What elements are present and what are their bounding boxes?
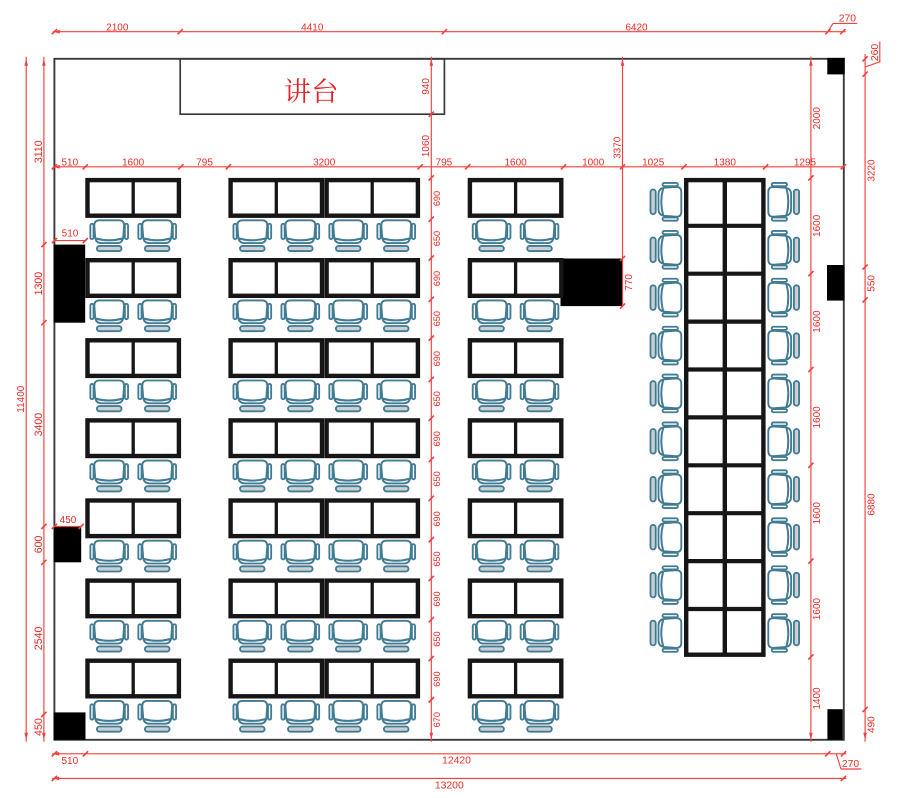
svg-text:1600: 1600 — [122, 158, 145, 169]
svg-text:1380: 1380 — [714, 158, 737, 169]
svg-text:690: 690 — [432, 351, 442, 366]
svg-text:650: 650 — [432, 551, 442, 566]
svg-text:2100: 2100 — [106, 22, 129, 33]
svg-text:550: 550 — [866, 275, 877, 292]
svg-text:1060: 1060 — [421, 134, 432, 157]
svg-text:3200: 3200 — [313, 158, 336, 169]
svg-text:270: 270 — [839, 13, 857, 24]
svg-text:490: 490 — [866, 716, 877, 733]
svg-text:1600: 1600 — [812, 406, 823, 429]
svg-text:13200: 13200 — [435, 781, 464, 792]
svg-text:3220: 3220 — [866, 159, 877, 182]
svg-text:11400: 11400 — [16, 385, 27, 413]
svg-text:1400: 1400 — [812, 687, 823, 710]
svg-text:690: 690 — [432, 271, 442, 286]
svg-text:650: 650 — [432, 231, 442, 246]
svg-text:770: 770 — [624, 274, 635, 291]
svg-text:3370: 3370 — [613, 136, 624, 159]
svg-text:1600: 1600 — [812, 597, 823, 620]
svg-text:1300: 1300 — [33, 272, 45, 296]
svg-text:510: 510 — [61, 158, 78, 169]
svg-text:1025: 1025 — [642, 158, 665, 169]
svg-text:450: 450 — [33, 718, 45, 736]
svg-text:3400: 3400 — [33, 413, 45, 437]
svg-text:650: 650 — [432, 471, 442, 486]
svg-text:4410: 4410 — [301, 22, 324, 33]
svg-text:6880: 6880 — [866, 493, 877, 516]
svg-text:1000: 1000 — [582, 158, 605, 169]
svg-text:650: 650 — [432, 391, 442, 406]
svg-text:3110: 3110 — [33, 140, 45, 163]
svg-text:690: 690 — [432, 191, 442, 206]
svg-text:1600: 1600 — [504, 158, 527, 169]
svg-text:1600: 1600 — [812, 214, 823, 237]
svg-text:795: 795 — [196, 158, 213, 169]
svg-text:1600: 1600 — [812, 502, 823, 525]
svg-text:510: 510 — [62, 229, 79, 240]
svg-text:690: 690 — [432, 431, 442, 446]
svg-text:795: 795 — [436, 158, 453, 169]
svg-text:650: 650 — [432, 631, 442, 646]
svg-text:1295: 1295 — [794, 158, 817, 169]
svg-text:690: 690 — [432, 591, 442, 606]
svg-text:2000: 2000 — [812, 107, 823, 130]
svg-text:270: 270 — [842, 759, 860, 770]
svg-text:6420: 6420 — [625, 22, 648, 33]
svg-text:940: 940 — [421, 78, 432, 95]
svg-text:1600: 1600 — [812, 310, 823, 333]
svg-text:670: 670 — [432, 712, 442, 727]
svg-text:690: 690 — [432, 511, 442, 526]
svg-text:450: 450 — [60, 515, 77, 526]
svg-text:260: 260 — [870, 44, 881, 62]
svg-text:650: 650 — [432, 311, 442, 326]
svg-text:2540: 2540 — [33, 627, 45, 651]
svg-text:12420: 12420 — [442, 756, 471, 767]
svg-text:510: 510 — [61, 756, 78, 767]
svg-text:600: 600 — [33, 535, 45, 553]
svg-text:690: 690 — [432, 671, 442, 686]
